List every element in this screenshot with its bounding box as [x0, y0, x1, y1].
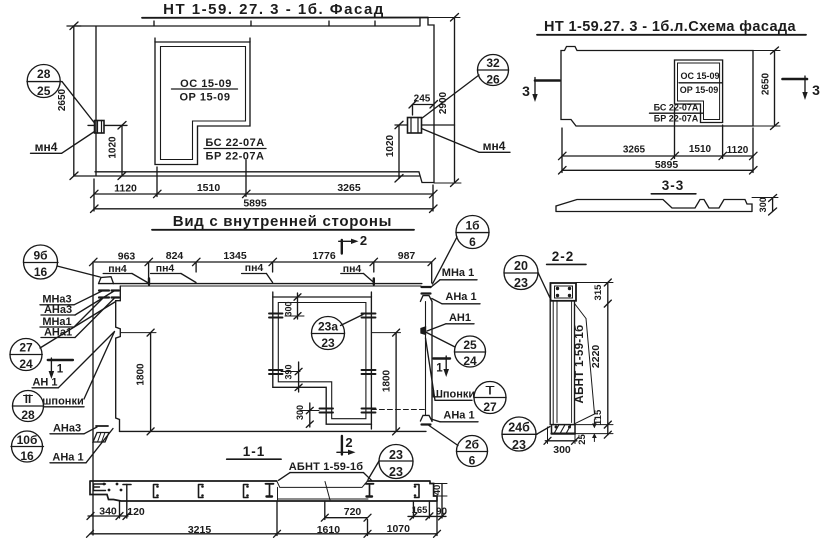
svg-text:23: 23: [389, 465, 403, 479]
svg-text:16: 16: [34, 265, 48, 279]
svg-text:2650: 2650: [57, 88, 68, 111]
svg-text:ОС 15-09: ОС 15-09: [180, 78, 232, 90]
svg-text:I: I: [488, 386, 491, 398]
svg-text:24: 24: [463, 354, 477, 368]
svg-text:2650: 2650: [761, 72, 772, 95]
svg-text:25: 25: [463, 338, 477, 352]
svg-text:340: 340: [99, 506, 117, 518]
svg-text:16: 16: [20, 449, 34, 463]
svg-text:25: 25: [577, 434, 588, 445]
svg-text:шпонки: шпонки: [42, 396, 83, 408]
svg-text:40: 40: [432, 485, 443, 496]
svg-text:НТ 1-59. 27. 3 - 1б. Фасад: НТ 1-59. 27. 3 - 1б. Фасад: [163, 1, 385, 18]
svg-text:23: 23: [389, 448, 403, 462]
svg-text:2: 2: [360, 233, 367, 248]
svg-text:1345: 1345: [223, 250, 247, 262]
svg-text:300: 300: [284, 301, 294, 316]
svg-text:пн4: пн4: [245, 262, 264, 274]
svg-text:987: 987: [398, 250, 416, 262]
svg-text:1610: 1610: [317, 524, 341, 536]
svg-text:АН1: АН1: [449, 312, 471, 324]
svg-text:23: 23: [514, 276, 528, 290]
svg-text:23: 23: [512, 438, 526, 452]
svg-text:315: 315: [593, 284, 604, 301]
svg-text:1120: 1120: [114, 183, 137, 195]
svg-text:АНа 1: АНа 1: [443, 410, 474, 422]
svg-text:3265: 3265: [623, 145, 646, 156]
svg-text:АБНТ 1-59-1б: АБНТ 1-59-1б: [289, 461, 364, 473]
svg-text:Вид с внутренней стороны: Вид с внутренней стороны: [173, 213, 392, 230]
svg-text:1: 1: [57, 364, 64, 376]
svg-text:824: 824: [166, 250, 184, 262]
svg-text:28: 28: [21, 408, 35, 422]
svg-text:32: 32: [486, 56, 500, 70]
svg-text:390: 390: [284, 364, 294, 379]
svg-text:5895: 5895: [243, 198, 267, 210]
svg-text:мн4: мн4: [483, 139, 506, 153]
svg-text:БС 22-07А: БС 22-07А: [205, 137, 264, 149]
svg-text:АНа3: АНа3: [44, 304, 72, 316]
svg-text:МНа 1: МНа 1: [442, 267, 474, 279]
svg-text:26: 26: [486, 73, 500, 87]
svg-text:2220: 2220: [590, 345, 602, 369]
svg-text:пн4: пн4: [156, 263, 175, 275]
svg-text:БС 22-07А: БС 22-07А: [654, 103, 699, 113]
svg-text:АНа 1: АНа 1: [445, 291, 476, 303]
svg-text:20: 20: [514, 259, 528, 273]
svg-text:1020: 1020: [108, 136, 119, 159]
svg-text:БР 22-07А: БР 22-07А: [206, 151, 265, 163]
svg-text:1: 1: [436, 363, 443, 375]
svg-text:3215: 3215: [188, 524, 212, 536]
svg-text:2б: 2б: [465, 438, 479, 452]
svg-text:БР 22-07А: БР 22-07А: [654, 114, 699, 124]
svg-text:24б: 24б: [508, 421, 530, 435]
svg-text:24: 24: [19, 357, 33, 371]
svg-text:963: 963: [118, 251, 136, 263]
svg-text:1800: 1800: [382, 369, 393, 392]
svg-text:1510: 1510: [689, 144, 712, 155]
svg-text:300: 300: [553, 444, 571, 456]
svg-text:2-2: 2-2: [552, 249, 575, 264]
svg-text:6: 6: [469, 235, 476, 249]
svg-text:6: 6: [469, 454, 476, 468]
svg-text:мн4: мн4: [35, 140, 58, 154]
svg-text:27: 27: [483, 400, 497, 414]
svg-text:245: 245: [414, 94, 431, 105]
svg-text:НТ 1-59.27. 3 - 1б.л.Схема фас: НТ 1-59.27. 3 - 1б.л.Схема фасада: [544, 19, 797, 35]
svg-text:2900: 2900: [438, 91, 449, 114]
svg-text:120: 120: [127, 506, 145, 518]
svg-text:23а: 23а: [318, 320, 338, 334]
svg-text:300: 300: [295, 405, 305, 420]
svg-text:АН 1: АН 1: [32, 377, 57, 389]
svg-text:3-3: 3-3: [662, 178, 685, 193]
svg-text:300: 300: [758, 197, 768, 212]
svg-text:АНа3: АНа3: [53, 423, 81, 435]
svg-text:1070: 1070: [387, 523, 411, 535]
svg-text:3: 3: [812, 82, 820, 98]
svg-text:АНа 1: АНа 1: [52, 452, 83, 464]
svg-text:1-1: 1-1: [243, 444, 266, 459]
svg-text:1776: 1776: [312, 250, 336, 262]
svg-text:3: 3: [522, 83, 530, 99]
svg-text:27: 27: [19, 341, 33, 355]
svg-text:1510: 1510: [197, 182, 221, 194]
svg-text:165: 165: [412, 505, 429, 516]
svg-text:3265: 3265: [337, 182, 361, 194]
svg-text:9б: 9б: [33, 249, 47, 263]
svg-text:ОР 15-09: ОР 15-09: [179, 92, 230, 104]
svg-text:АБНТ 1-59-1б: АБНТ 1-59-1б: [574, 324, 586, 403]
svg-text:1120: 1120: [727, 145, 749, 156]
svg-text:Шпонки: Шпонки: [432, 389, 475, 401]
svg-text:ОС 15-09: ОС 15-09: [680, 71, 719, 81]
svg-text:2: 2: [345, 435, 352, 450]
svg-text:10б: 10б: [17, 433, 38, 447]
svg-text:23: 23: [321, 336, 335, 350]
svg-text:1б: 1б: [465, 219, 479, 233]
svg-text:1800: 1800: [136, 363, 147, 386]
svg-text:25: 25: [37, 84, 51, 98]
svg-text:5895: 5895: [655, 159, 679, 171]
svg-text:720: 720: [344, 506, 362, 518]
svg-text:ОР 15-09: ОР 15-09: [680, 85, 719, 95]
svg-text:1020: 1020: [385, 134, 396, 157]
svg-text:28: 28: [37, 67, 51, 81]
